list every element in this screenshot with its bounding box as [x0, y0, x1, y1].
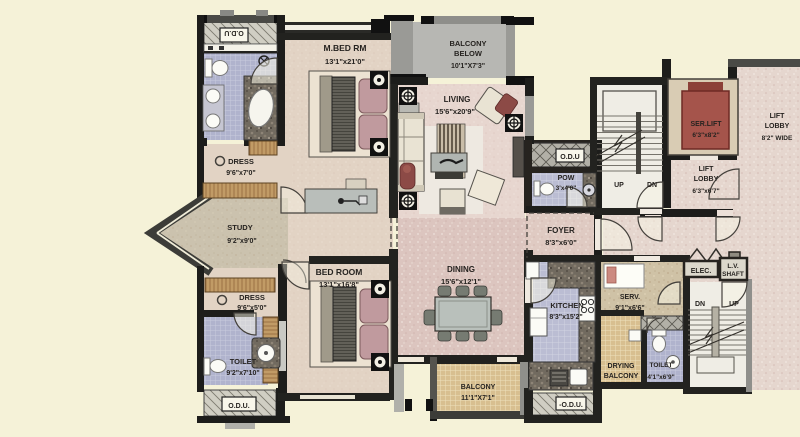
- svg-text:L.V.: L.V.: [727, 263, 739, 270]
- svg-text:SHAFT: SHAFT: [722, 271, 744, 278]
- svg-text:LOBBY: LOBBY: [765, 123, 790, 130]
- svg-text:UP: UP: [614, 182, 624, 189]
- svg-text:DINING: DINING: [447, 265, 475, 274]
- svg-text:ELEC.: ELEC.: [691, 268, 712, 275]
- svg-text:O.D.U: O.D.U: [560, 154, 579, 161]
- svg-text:DN: DN: [647, 182, 657, 189]
- svg-text:LOBBY: LOBBY: [694, 176, 719, 183]
- svg-text:DRYING: DRYING: [608, 363, 636, 370]
- svg-text:13'1"x16'8": 13'1"x16'8": [319, 280, 359, 289]
- svg-text:LIFT: LIFT: [699, 166, 714, 173]
- svg-text:BALCONY: BALCONY: [604, 373, 639, 380]
- svg-text:15'6"x12'1": 15'6"x12'1": [441, 277, 481, 286]
- svg-text:9'1"x6'6": 9'1"x6'6": [615, 305, 644, 312]
- svg-text:BALCONY: BALCONY: [461, 384, 496, 391]
- svg-text:SERV.: SERV.: [620, 294, 640, 301]
- svg-text:9'2"x9'0": 9'2"x9'0": [227, 238, 256, 245]
- svg-text:SER.LIFT: SER.LIFT: [690, 121, 722, 128]
- svg-text:-O.D.U.: -O.D.U.: [559, 402, 583, 409]
- svg-text:DRESS: DRESS: [228, 157, 254, 166]
- svg-text:3'x4'0": 3'x4'0": [556, 185, 577, 192]
- svg-text:13'1"x21'0": 13'1"x21'0": [325, 57, 365, 66]
- svg-text:UP: UP: [729, 301, 739, 308]
- svg-text:9'6"x5'0": 9'6"x5'0": [237, 305, 266, 312]
- svg-text:4'8"x8'4": 4'8"x8'4": [607, 383, 634, 390]
- svg-text:10'1"X7'3": 10'1"X7'3": [451, 63, 485, 70]
- svg-text:TOILET: TOILET: [650, 362, 673, 369]
- svg-text:LIVING: LIVING: [444, 95, 471, 104]
- svg-text:9'2"x7'10": 9'2"x7'10": [226, 370, 259, 377]
- svg-text:O.D.U: O.D.U: [224, 29, 243, 36]
- svg-text:O.D.U.: O.D.U.: [228, 403, 249, 410]
- svg-text:8'2" WIDE: 8'2" WIDE: [762, 135, 793, 142]
- svg-text:6'3"x8'2": 6'3"x8'2": [692, 132, 719, 139]
- svg-text:11'1"X7'1": 11'1"X7'1": [461, 395, 495, 402]
- svg-text:STUDY: STUDY: [227, 223, 252, 232]
- svg-text:6'3"x6'7": 6'3"x6'7": [692, 188, 719, 195]
- svg-text:M.BED RM: M.BED RM: [324, 43, 367, 53]
- svg-text:DN: DN: [695, 301, 705, 308]
- svg-text:8'3"x15'2": 8'3"x15'2": [549, 314, 582, 321]
- svg-text:8'3"x6'0": 8'3"x6'0": [545, 238, 577, 247]
- svg-text:FOYER: FOYER: [547, 226, 575, 235]
- svg-text:TOILET: TOILET: [230, 357, 257, 366]
- svg-text:9'6"x7'0": 9'6"x7'0": [226, 170, 255, 177]
- svg-text:BED ROOM: BED ROOM: [316, 267, 363, 277]
- svg-text:LIFT: LIFT: [770, 113, 785, 120]
- svg-text:BELOW: BELOW: [454, 49, 483, 58]
- svg-text:DRESS: DRESS: [239, 293, 265, 302]
- svg-text:BALCONY: BALCONY: [449, 39, 486, 48]
- svg-text:POW: POW: [558, 175, 575, 182]
- svg-text:4'1"x6'9": 4'1"x6'9": [647, 374, 674, 381]
- svg-text:KITCHEN: KITCHEN: [550, 301, 583, 310]
- svg-text:15'6"x20'9": 15'6"x20'9": [435, 107, 475, 116]
